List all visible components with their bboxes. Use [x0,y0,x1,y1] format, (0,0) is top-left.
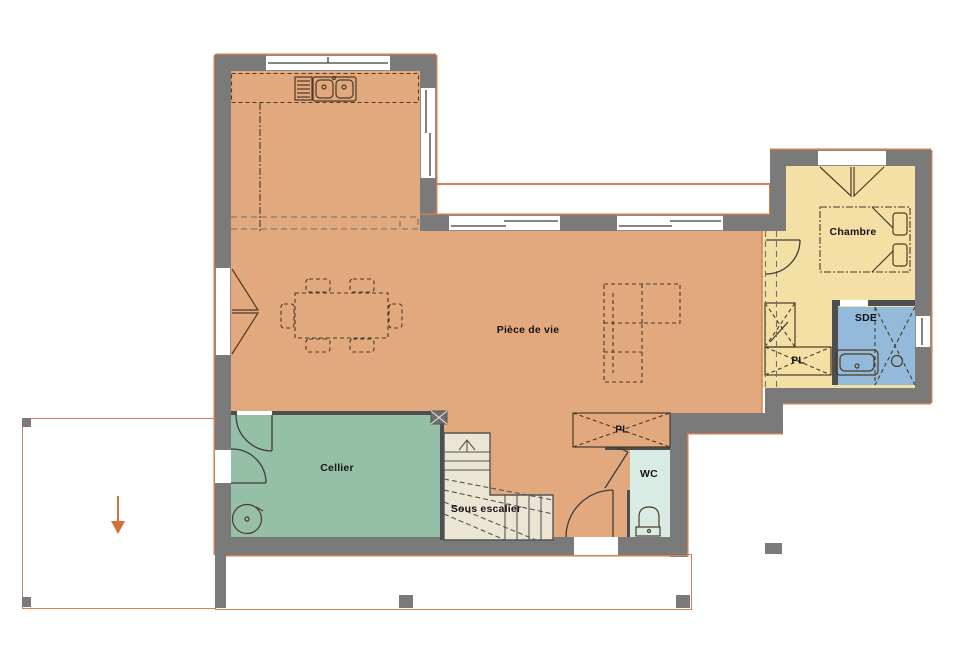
room-label-under-stairs: Sous escalier [451,503,521,515]
sofa [604,284,680,382]
kitchen-sink [295,77,356,102]
wc-door [605,447,628,488]
shower [875,307,915,385]
room-label-bedroom: Chambre [830,226,877,238]
room-label-wc: WC [640,468,658,480]
beam-dashed-lines [231,217,418,229]
pantry-door [236,415,272,451]
bedroom-door [766,240,800,274]
entrance-arrow-icon [111,496,125,534]
front-door [566,490,613,537]
room-label-living: Pièce de vie [497,324,560,336]
room-label-pantry: Cellier [320,462,354,474]
water-heater [233,505,264,534]
open-passage-dashes [762,231,777,413]
kitchen-counter [232,74,419,103]
floor-plan: Pièce de vie Chambre SDE Cellier Sous es… [0,0,960,664]
closet-hall-upper [765,303,795,347]
room-label-closet-hall: PL [791,356,804,367]
staircase [444,433,553,540]
bathroom-sink [836,350,878,375]
room-label-closet-entry: PL [615,425,628,436]
pantry-side-door [231,449,266,483]
toilet [636,507,660,536]
duct-box [431,411,447,424]
bed [820,207,910,272]
room-label-shower-room: SDE [855,312,877,324]
dining-table [281,279,402,352]
